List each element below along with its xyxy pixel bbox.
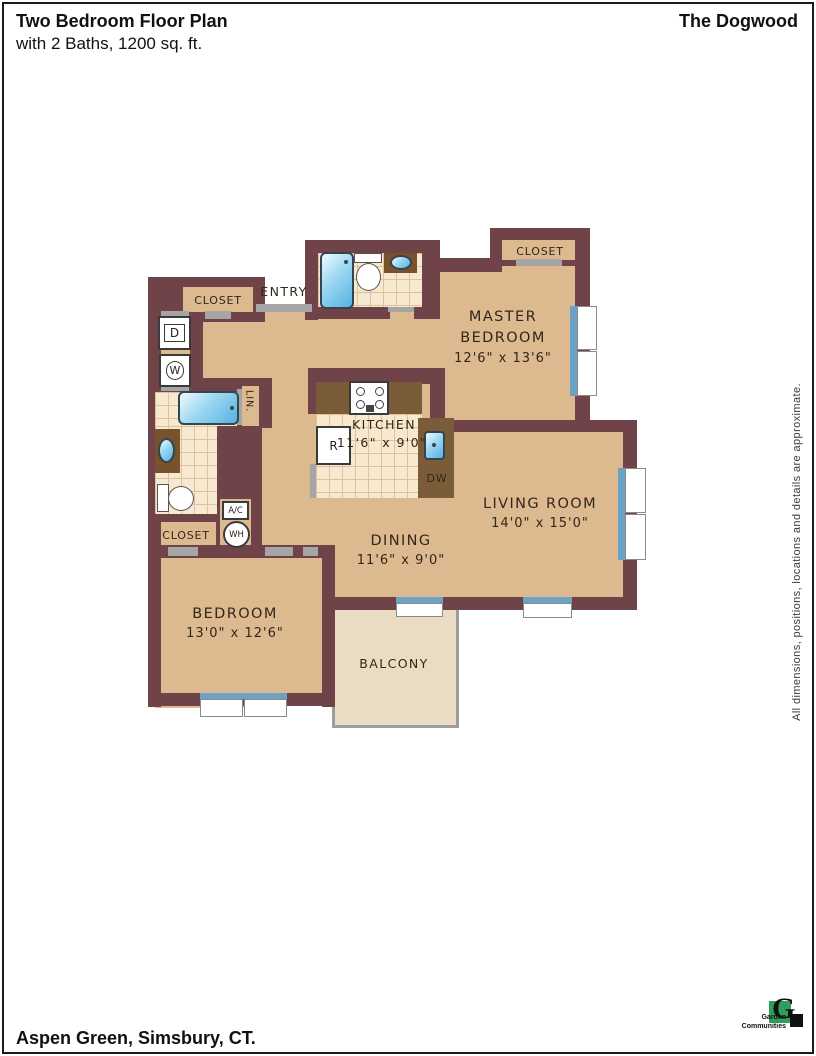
dining-dims: 11'6" x 9'0" <box>357 554 445 567</box>
window-living-2 <box>625 514 646 560</box>
washer: W <box>159 354 191 387</box>
kitchen-sink <box>424 431 445 460</box>
balcony-door <box>396 603 443 617</box>
door-opening-master-closet <box>516 259 562 266</box>
master-bedroom-label-1: MASTER <box>469 310 537 325</box>
wall <box>322 597 637 610</box>
wall <box>430 382 445 420</box>
door-opening-entry <box>256 304 312 312</box>
disclaimer-text: All dimensions, positions, locations and… <box>791 352 803 752</box>
window-sill-master <box>570 306 577 396</box>
master-toilet-bowl <box>356 263 381 291</box>
dryer-label: D <box>164 324 185 342</box>
living-room-dims: 14'0" x 15'0" <box>491 517 589 530</box>
stove-burner <box>375 387 384 396</box>
window-sill-living <box>618 468 625 560</box>
wall <box>322 545 335 707</box>
floor-living-room <box>440 424 632 604</box>
sink-drain <box>432 443 436 447</box>
bedroom-closet-label: CLOSET <box>162 530 210 541</box>
stove-burner <box>356 400 365 409</box>
bath2-sink <box>158 438 175 463</box>
window-living-bottom <box>523 603 572 618</box>
stove-burner <box>375 400 384 409</box>
water-heater-label: WH <box>229 530 244 540</box>
living-room-label: LIVING ROOM <box>483 497 597 512</box>
wall <box>148 514 218 522</box>
footer-location: Aspen Green, Simsbury, CT. <box>16 1028 256 1049</box>
master-bath-sink <box>390 255 412 270</box>
window-living-1 <box>625 468 646 513</box>
master-bedroom-dims: 12'6" x 13'6" <box>454 352 552 365</box>
master-bath-tub <box>320 252 354 309</box>
wall <box>440 420 637 432</box>
oven-vent <box>366 405 374 412</box>
washer-label: W <box>166 361 185 380</box>
balcony-label: BALCONY <box>359 658 428 671</box>
door-opening-entry-closet <box>205 311 231 319</box>
window-bedroom-1 <box>200 699 243 717</box>
bedroom-label: BEDROOM <box>192 607 278 622</box>
logo-company-name: Garden Communities <box>700 1014 786 1032</box>
window-master-2 <box>577 351 597 396</box>
kitchen-label: KITCHEN <box>352 419 416 432</box>
master-closet-label: CLOSET <box>516 246 564 257</box>
wall <box>216 424 262 500</box>
dryer: D <box>158 316 191 350</box>
master-toilet-tank <box>354 253 382 263</box>
logo-name-line1: Garden <box>700 1014 786 1023</box>
kitchen-dims: 11'6" x 9'0" <box>337 437 427 450</box>
page-title: Two Bedroom Floor Plan <box>16 11 228 32</box>
floor-plan-page: Two Bedroom Floor Plan with 2 Baths, 120… <box>0 0 816 1056</box>
tub-drain <box>230 406 234 410</box>
bath2-toilet-bowl <box>168 486 194 511</box>
bath2-tub <box>178 391 239 425</box>
stove-burner <box>356 387 365 396</box>
air-conditioner-label: A/C <box>228 506 243 516</box>
water-heater: WH <box>223 521 250 548</box>
logo-name-line2: Communities <box>700 1023 786 1032</box>
master-bedroom-label-2: BEDROOM <box>460 331 546 346</box>
stove <box>349 381 389 415</box>
logo-black-square <box>790 1014 803 1027</box>
entry-label: ENTRY <box>260 286 307 299</box>
tub-drain <box>344 260 348 264</box>
door-opening-hall <box>303 547 318 556</box>
air-conditioner: A/C <box>222 501 249 520</box>
wall <box>258 378 272 428</box>
window-master-1 <box>577 306 597 350</box>
door-opening-bedroom-closet <box>168 547 198 556</box>
linen-closet-label: LIN. <box>244 390 254 412</box>
page-subtitle: with 2 Baths, 1200 sq. ft. <box>16 34 202 54</box>
bedroom-dims: 13'0" x 12'6" <box>186 627 284 640</box>
entry-closet-label: CLOSET <box>194 295 242 306</box>
dining-label: DINING <box>370 534 431 549</box>
dishwasher-label: DW <box>427 473 448 484</box>
plan-name: The Dogwood <box>679 11 798 32</box>
window-bedroom-2 <box>244 699 287 717</box>
door-opening-bedroom <box>265 547 293 556</box>
